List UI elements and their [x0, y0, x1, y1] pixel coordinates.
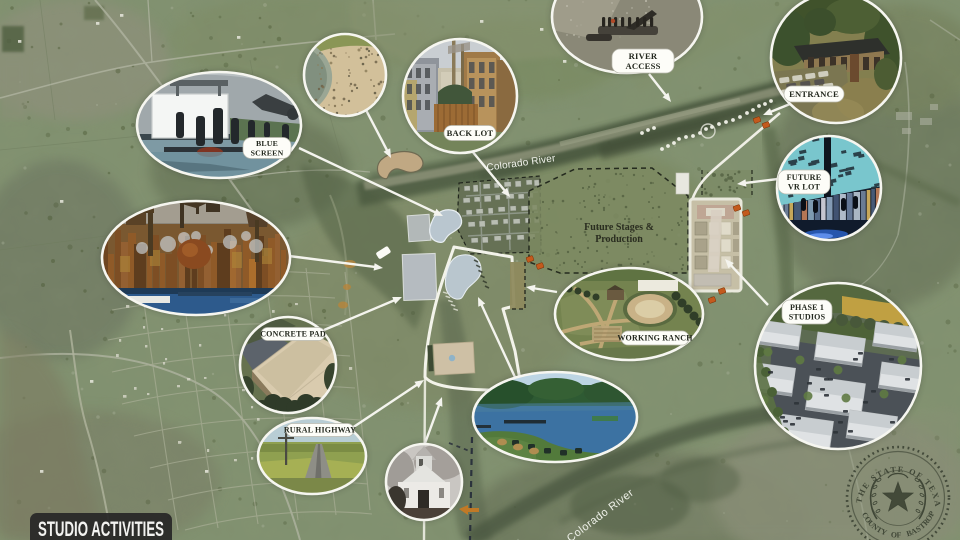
- svg-text:BACK LOT: BACK LOT: [447, 128, 494, 138]
- svg-text:ENTRANCE: ENTRANCE: [789, 89, 839, 99]
- svg-text:STUDIO ACTIVITIES: STUDIO ACTIVITIES: [38, 518, 164, 540]
- svg-text:FUTURE: FUTURE: [787, 173, 822, 182]
- svg-text:ACCESS: ACCESS: [625, 61, 660, 71]
- svg-text:Production: Production: [595, 234, 643, 245]
- svg-text:CONCRETE PAD: CONCRETE PAD: [260, 330, 326, 339]
- svg-text:WORKING RANCH: WORKING RANCH: [617, 334, 693, 343]
- svg-text:PHASE 1: PHASE 1: [790, 303, 824, 312]
- svg-text:STUDIOS: STUDIOS: [789, 313, 826, 322]
- svg-text:RIVER: RIVER: [629, 51, 658, 61]
- svg-text:SCREEN: SCREEN: [251, 148, 284, 157]
- svg-text:F: F: [896, 530, 901, 539]
- svg-text:Future Stages &: Future Stages &: [584, 222, 654, 233]
- svg-text:VR LOT: VR LOT: [788, 183, 821, 192]
- svg-text:BLUE: BLUE: [256, 139, 278, 148]
- svg-text:RURAL HIGHWAY: RURAL HIGHWAY: [284, 426, 356, 435]
